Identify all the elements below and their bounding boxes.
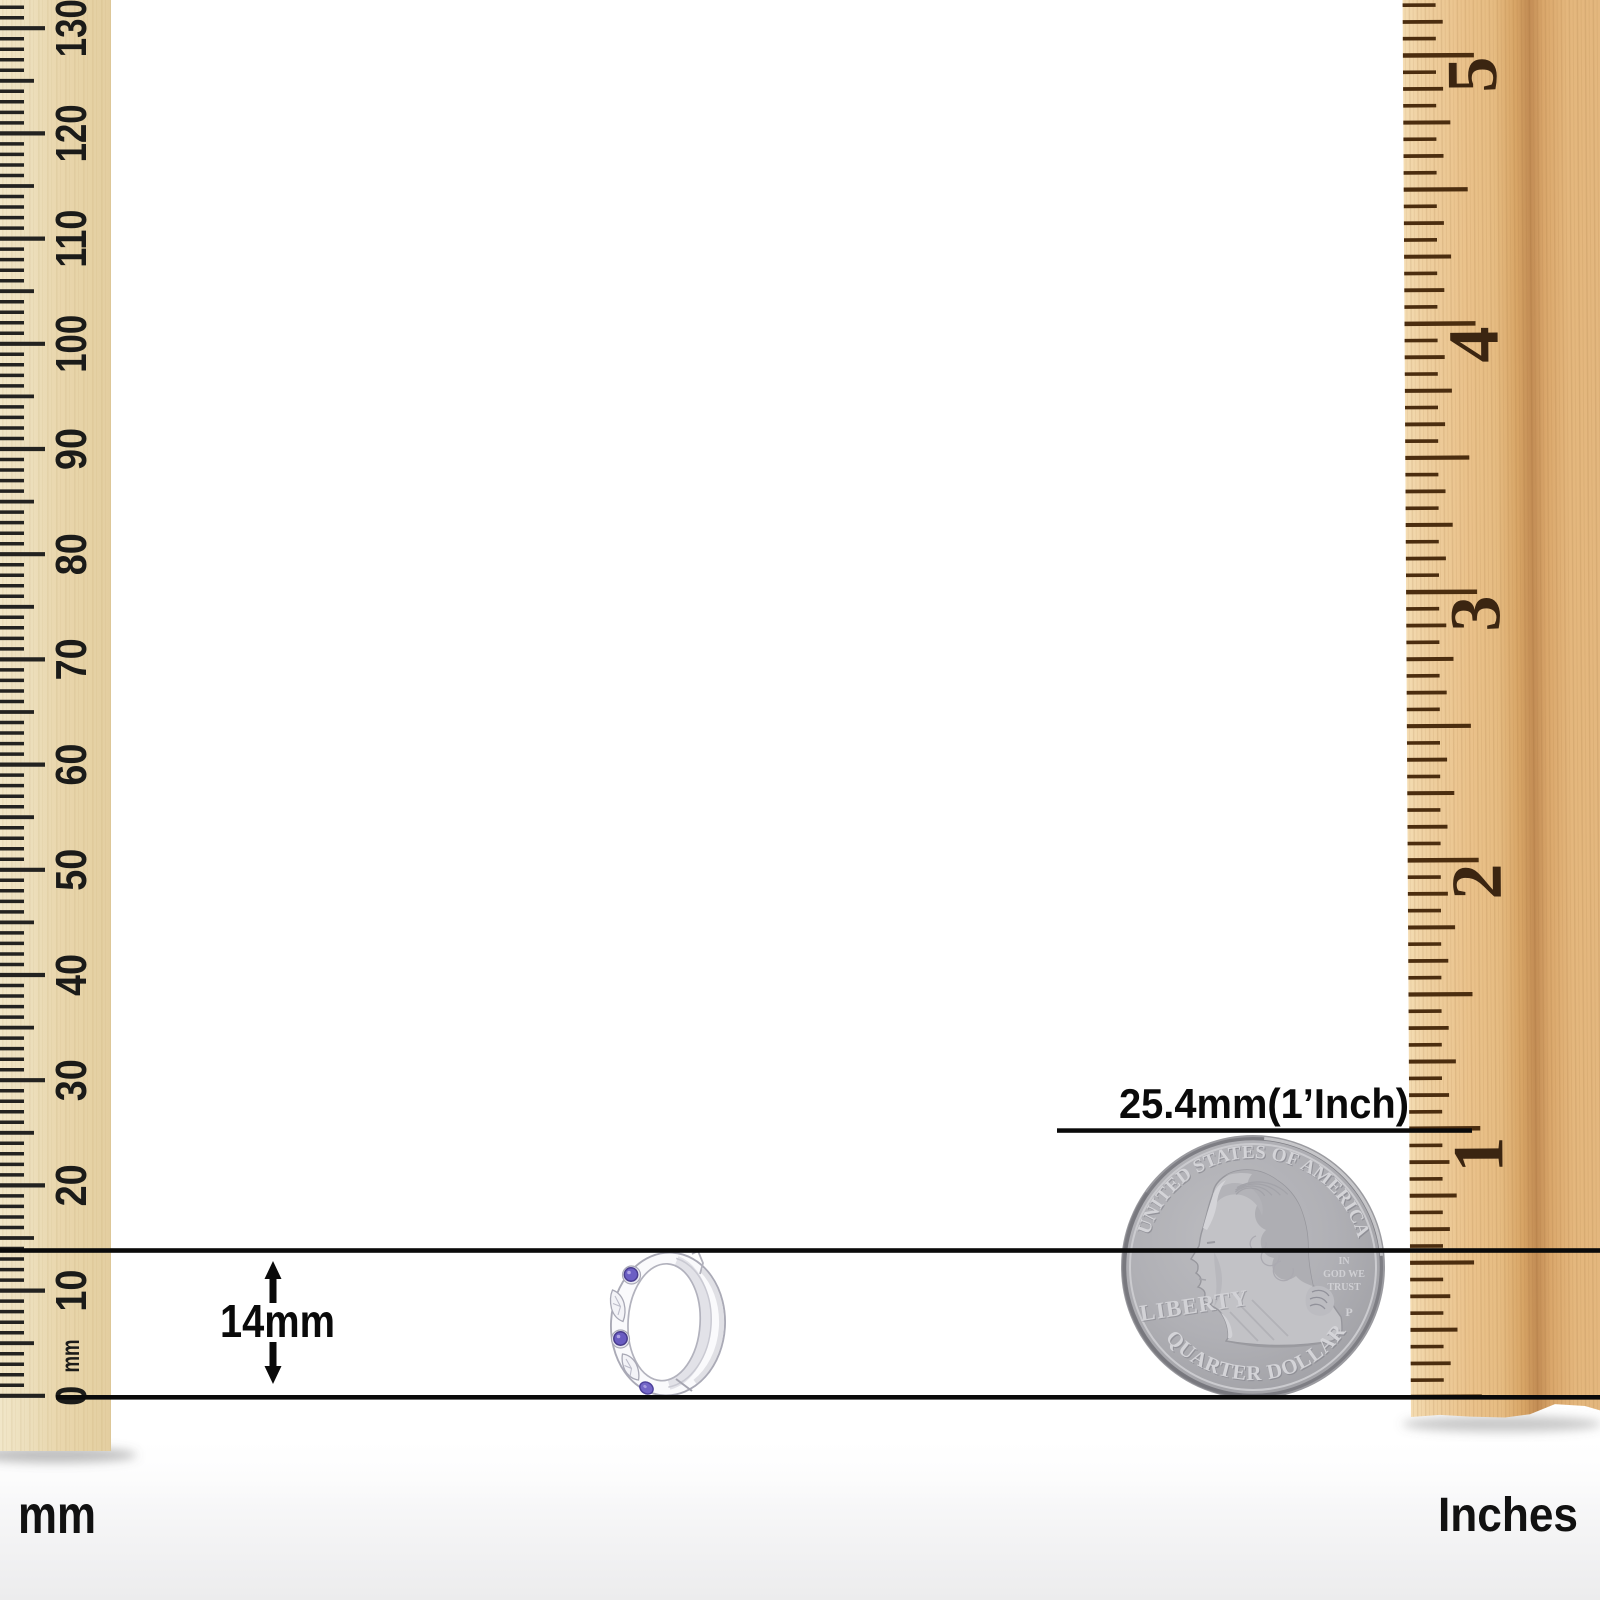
svg-text:10: 10	[47, 1270, 96, 1312]
svg-text:Inches: Inches	[1438, 1489, 1578, 1542]
svg-text:40: 40	[47, 954, 96, 996]
svg-text:20: 20	[47, 1164, 96, 1206]
svg-text:50: 50	[47, 849, 96, 891]
svg-text:90: 90	[47, 428, 96, 470]
svg-text:P: P	[1345, 1305, 1352, 1319]
svg-text:4: 4	[1434, 326, 1514, 362]
svg-text:120: 120	[47, 104, 96, 162]
svg-text:80: 80	[47, 533, 96, 575]
svg-text:70: 70	[47, 638, 96, 680]
svg-text:IN: IN	[1338, 1256, 1350, 1267]
svg-text:5: 5	[1432, 56, 1512, 92]
svg-text:130: 130	[47, 0, 96, 57]
svg-text:110: 110	[47, 210, 96, 268]
svg-text:14mm: 14mm	[220, 1295, 335, 1347]
svg-text:GOD WE: GOD WE	[1323, 1269, 1365, 1280]
svg-text:TRUST: TRUST	[1327, 1282, 1361, 1293]
svg-text:mm: mm	[18, 1485, 96, 1545]
svg-text:30: 30	[47, 1059, 96, 1101]
svg-text:60: 60	[47, 744, 96, 786]
svg-text:100: 100	[47, 315, 96, 373]
svg-text:25.4mm(1’Inch): 25.4mm(1’Inch)	[1119, 1080, 1409, 1127]
svg-text:mm: mm	[57, 1340, 85, 1373]
svg-text:2: 2	[1437, 863, 1517, 899]
svg-text:1: 1	[1438, 1136, 1518, 1172]
svg-text:3: 3	[1435, 595, 1515, 631]
